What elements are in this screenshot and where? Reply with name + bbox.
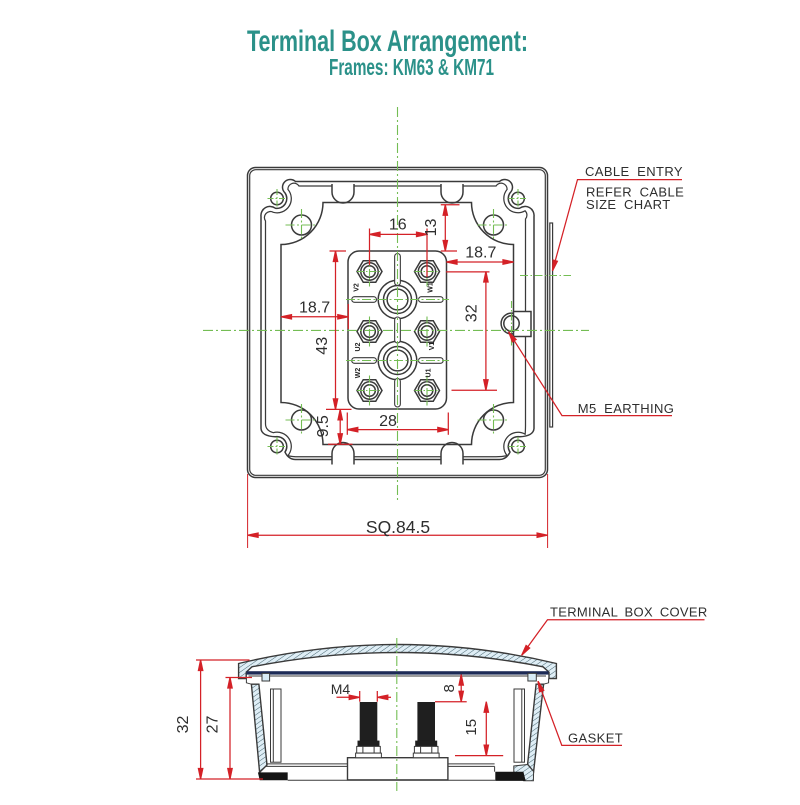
svg-text:43: 43 (314, 337, 331, 355)
svg-text:18.7: 18.7 (299, 300, 330, 317)
svg-text:TERMINAL BOX COVER: TERMINAL BOX COVER (550, 604, 708, 619)
svg-text:8: 8 (441, 684, 458, 692)
svg-text:Frames: KM63 & KM71: Frames: KM63 & KM71 (329, 54, 494, 80)
svg-text:M4: M4 (331, 681, 351, 697)
svg-text:32: 32 (463, 304, 480, 322)
svg-text:CABLE ENTRY: CABLE ENTRY (585, 164, 683, 179)
svg-text:SIZE CHART: SIZE CHART (586, 197, 671, 212)
svg-text:U2: U2 (355, 342, 362, 351)
svg-text:9.5: 9.5 (315, 415, 332, 437)
svg-text:M5 EARTHING: M5 EARTHING (578, 401, 675, 416)
svg-text:SQ.84.5: SQ.84.5 (366, 517, 430, 537)
svg-text:W1: W1 (428, 282, 435, 293)
svg-text:GASKET: GASKET (568, 730, 623, 745)
svg-text:13: 13 (423, 219, 440, 237)
svg-text:W2: W2 (355, 368, 362, 379)
svg-text:15: 15 (463, 719, 480, 736)
svg-text:18.7: 18.7 (465, 245, 496, 262)
svg-text:16: 16 (389, 217, 407, 234)
svg-text:U1: U1 (426, 368, 433, 377)
svg-text:V2: V2 (354, 283, 361, 292)
svg-text:V1: V1 (429, 342, 436, 351)
svg-text:32: 32 (175, 716, 192, 734)
svg-text:28: 28 (379, 413, 397, 430)
svg-text:27: 27 (205, 716, 222, 734)
